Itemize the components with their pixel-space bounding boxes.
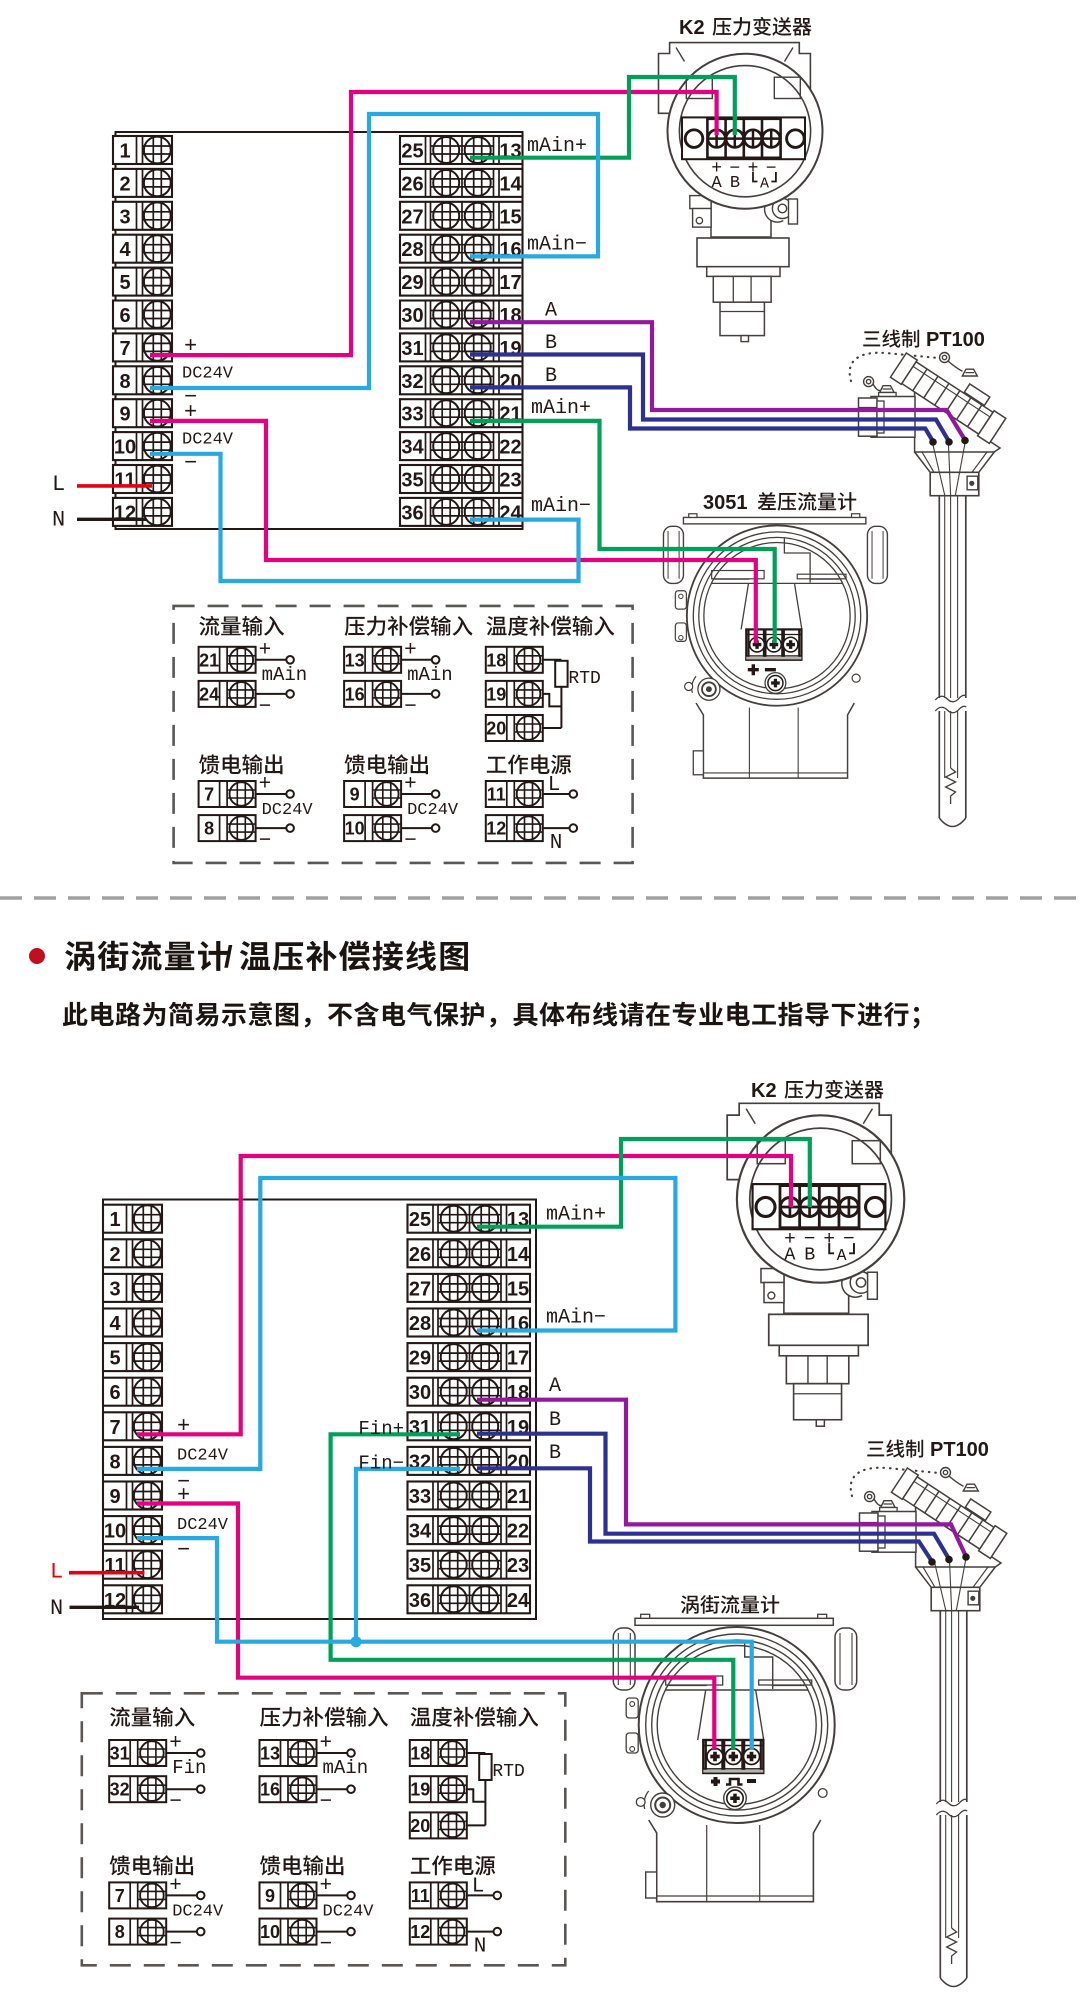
svg-text:35: 35 xyxy=(409,1555,431,1577)
svg-text:+: + xyxy=(320,1733,333,1756)
svg-text:30: 30 xyxy=(409,1382,431,1404)
svg-text:36: 36 xyxy=(401,502,423,524)
svg-text:mAin+: mAin+ xyxy=(531,397,591,420)
svg-text:+: + xyxy=(177,1483,190,1508)
svg-text:B: B xyxy=(549,1442,561,1465)
svg-text:A: A xyxy=(549,1375,561,1398)
svg-text:PT100: PT100 xyxy=(926,329,985,351)
svg-text:A: A xyxy=(760,176,769,193)
svg-text:29: 29 xyxy=(401,272,423,294)
svg-text:+: + xyxy=(259,639,272,662)
svg-text:PT100: PT100 xyxy=(930,1439,989,1461)
svg-text:B: B xyxy=(549,1409,561,1432)
svg-text:35: 35 xyxy=(401,470,423,492)
svg-text:mAin−: mAin− xyxy=(527,234,587,257)
svg-text:A: A xyxy=(711,174,722,193)
svg-text:RTD: RTD xyxy=(568,669,600,689)
svg-text:3: 3 xyxy=(119,206,130,228)
svg-text:33: 33 xyxy=(409,1486,431,1508)
svg-text:9: 9 xyxy=(119,404,130,426)
svg-text:26: 26 xyxy=(401,173,423,195)
svg-text:10: 10 xyxy=(345,819,365,839)
svg-text:DC24V: DC24V xyxy=(262,801,314,820)
svg-text:21: 21 xyxy=(507,1486,529,1508)
svg-text:6: 6 xyxy=(119,305,130,327)
svg-text:9: 9 xyxy=(109,1486,120,1508)
svg-text:RTD: RTD xyxy=(492,1762,524,1782)
svg-text:N: N xyxy=(52,508,65,533)
svg-text:7: 7 xyxy=(119,338,130,360)
svg-text:16: 16 xyxy=(260,1780,280,1800)
svg-text:19: 19 xyxy=(486,684,506,704)
svg-text:11: 11 xyxy=(487,785,506,805)
svg-text:11: 11 xyxy=(114,470,135,492)
svg-text:−: − xyxy=(169,1934,182,1957)
svg-text:18: 18 xyxy=(486,650,506,670)
svg-text:mAin−: mAin− xyxy=(546,1307,606,1330)
svg-text:31: 31 xyxy=(401,338,423,360)
svg-text:28: 28 xyxy=(409,1313,431,1335)
svg-text:8: 8 xyxy=(109,1451,120,1473)
svg-text:DC24V: DC24V xyxy=(177,1447,229,1466)
svg-text:33: 33 xyxy=(401,404,423,426)
svg-text:−: − xyxy=(169,1791,182,1814)
svg-text:11: 11 xyxy=(411,1886,430,1906)
svg-text:8: 8 xyxy=(115,1922,125,1942)
svg-text:31: 31 xyxy=(110,1744,130,1764)
svg-text:12: 12 xyxy=(410,1922,430,1942)
svg-text:−: − xyxy=(259,696,272,719)
svg-text:3051: 3051 xyxy=(703,492,748,514)
svg-text:23: 23 xyxy=(499,470,521,492)
svg-text:N: N xyxy=(50,1596,63,1621)
svg-text:12: 12 xyxy=(486,819,506,839)
svg-text:15: 15 xyxy=(499,206,521,228)
svg-text:36: 36 xyxy=(409,1590,431,1612)
svg-text:−: − xyxy=(320,1791,333,1814)
svg-text:17: 17 xyxy=(499,272,521,294)
svg-text:15: 15 xyxy=(507,1278,529,1300)
svg-text:−: − xyxy=(320,1934,333,1957)
svg-text:+: + xyxy=(404,774,417,797)
svg-text:21: 21 xyxy=(199,650,219,670)
svg-text:2: 2 xyxy=(119,173,130,195)
svg-text:10: 10 xyxy=(104,1521,126,1543)
svg-text:30: 30 xyxy=(401,305,423,327)
svg-text:8: 8 xyxy=(119,371,130,393)
svg-text:9: 9 xyxy=(350,785,360,805)
svg-text:DC24V: DC24V xyxy=(407,801,459,820)
svg-text:mAin+: mAin+ xyxy=(546,1204,606,1227)
svg-text:+: + xyxy=(184,400,197,425)
svg-text:+: + xyxy=(404,639,417,662)
svg-text:20: 20 xyxy=(486,719,506,739)
svg-text:B: B xyxy=(545,332,557,355)
svg-text:−: − xyxy=(184,451,197,476)
svg-text:8: 8 xyxy=(204,819,214,839)
svg-text:17: 17 xyxy=(507,1348,529,1370)
svg-text:Fin+: Fin+ xyxy=(358,1418,404,1440)
svg-text:14: 14 xyxy=(499,173,522,195)
svg-text:19: 19 xyxy=(410,1780,430,1800)
svg-text:mAin−: mAin− xyxy=(531,495,591,518)
svg-text:25: 25 xyxy=(409,1209,431,1231)
svg-text:20: 20 xyxy=(410,1816,430,1836)
svg-text:DC24V: DC24V xyxy=(182,431,234,450)
svg-text:32: 32 xyxy=(401,371,423,393)
svg-text:L: L xyxy=(52,472,65,497)
svg-text:3: 3 xyxy=(109,1278,120,1300)
svg-text:mAin: mAin xyxy=(407,664,453,686)
svg-text:4: 4 xyxy=(109,1313,121,1335)
svg-text:+: + xyxy=(184,334,197,359)
svg-text:1: 1 xyxy=(109,1209,120,1231)
svg-text:7: 7 xyxy=(109,1417,120,1439)
svg-text:23: 23 xyxy=(507,1555,529,1577)
svg-text:10: 10 xyxy=(114,437,136,459)
svg-text:25: 25 xyxy=(401,141,423,163)
svg-text:16: 16 xyxy=(345,684,365,704)
svg-text:12: 12 xyxy=(114,502,136,524)
svg-text:14: 14 xyxy=(507,1244,530,1266)
svg-text:27: 27 xyxy=(409,1278,431,1300)
svg-text:−: − xyxy=(404,696,417,719)
svg-text:B: B xyxy=(545,365,557,388)
svg-text:DC24V: DC24V xyxy=(323,1902,375,1921)
svg-text:+: + xyxy=(320,1875,333,1898)
svg-text:34: 34 xyxy=(409,1521,432,1543)
svg-text:6: 6 xyxy=(109,1382,120,1404)
svg-text:10: 10 xyxy=(260,1922,280,1942)
svg-text:+: + xyxy=(259,774,272,797)
svg-text:26: 26 xyxy=(409,1244,431,1266)
svg-text:DC24V: DC24V xyxy=(182,365,234,384)
svg-text:4: 4 xyxy=(119,239,131,261)
svg-text:K2: K2 xyxy=(751,1080,777,1102)
svg-text:L: L xyxy=(472,1875,485,1898)
svg-text:7: 7 xyxy=(204,785,214,805)
svg-text:Fin: Fin xyxy=(172,1757,206,1779)
svg-text:1: 1 xyxy=(119,141,130,163)
svg-text:22: 22 xyxy=(507,1521,529,1543)
svg-text:K2: K2 xyxy=(679,17,705,39)
svg-text:−: − xyxy=(259,830,272,853)
svg-text:5: 5 xyxy=(119,272,130,294)
svg-text:32: 32 xyxy=(110,1780,130,1800)
svg-text:−: − xyxy=(177,1538,190,1563)
svg-text:+: + xyxy=(169,1875,182,1898)
svg-text:B: B xyxy=(730,174,740,193)
svg-text:18: 18 xyxy=(410,1744,430,1764)
svg-text:L: L xyxy=(548,774,561,797)
svg-text:DC24V: DC24V xyxy=(172,1902,224,1921)
svg-text:7: 7 xyxy=(115,1886,125,1906)
svg-text:28: 28 xyxy=(401,239,423,261)
svg-text:N: N xyxy=(550,832,563,855)
svg-text:L: L xyxy=(50,1560,63,1585)
svg-text:24: 24 xyxy=(507,1590,530,1612)
svg-text:A: A xyxy=(545,300,557,323)
svg-text:+: + xyxy=(177,1414,190,1439)
svg-text:13: 13 xyxy=(345,650,365,670)
svg-text:+: + xyxy=(169,1733,182,1756)
svg-text:mAin+: mAin+ xyxy=(527,135,587,158)
svg-text:24: 24 xyxy=(199,684,219,704)
svg-text:DC24V: DC24V xyxy=(177,1516,229,1535)
svg-text:27: 27 xyxy=(401,206,423,228)
svg-text:5: 5 xyxy=(109,1348,120,1370)
svg-text:Fin−: Fin− xyxy=(358,1453,404,1475)
svg-text:N: N xyxy=(474,1936,487,1959)
svg-text:9: 9 xyxy=(265,1886,275,1906)
svg-text:34: 34 xyxy=(401,437,424,459)
svg-text:29: 29 xyxy=(409,1348,431,1370)
svg-text:mAin: mAin xyxy=(262,664,308,686)
svg-text:mAin: mAin xyxy=(323,1757,369,1779)
svg-text:2: 2 xyxy=(109,1244,120,1266)
svg-text:/: / xyxy=(224,939,233,974)
svg-text:22: 22 xyxy=(499,437,521,459)
svg-text:−: − xyxy=(404,830,417,853)
svg-text:13: 13 xyxy=(260,1744,280,1764)
